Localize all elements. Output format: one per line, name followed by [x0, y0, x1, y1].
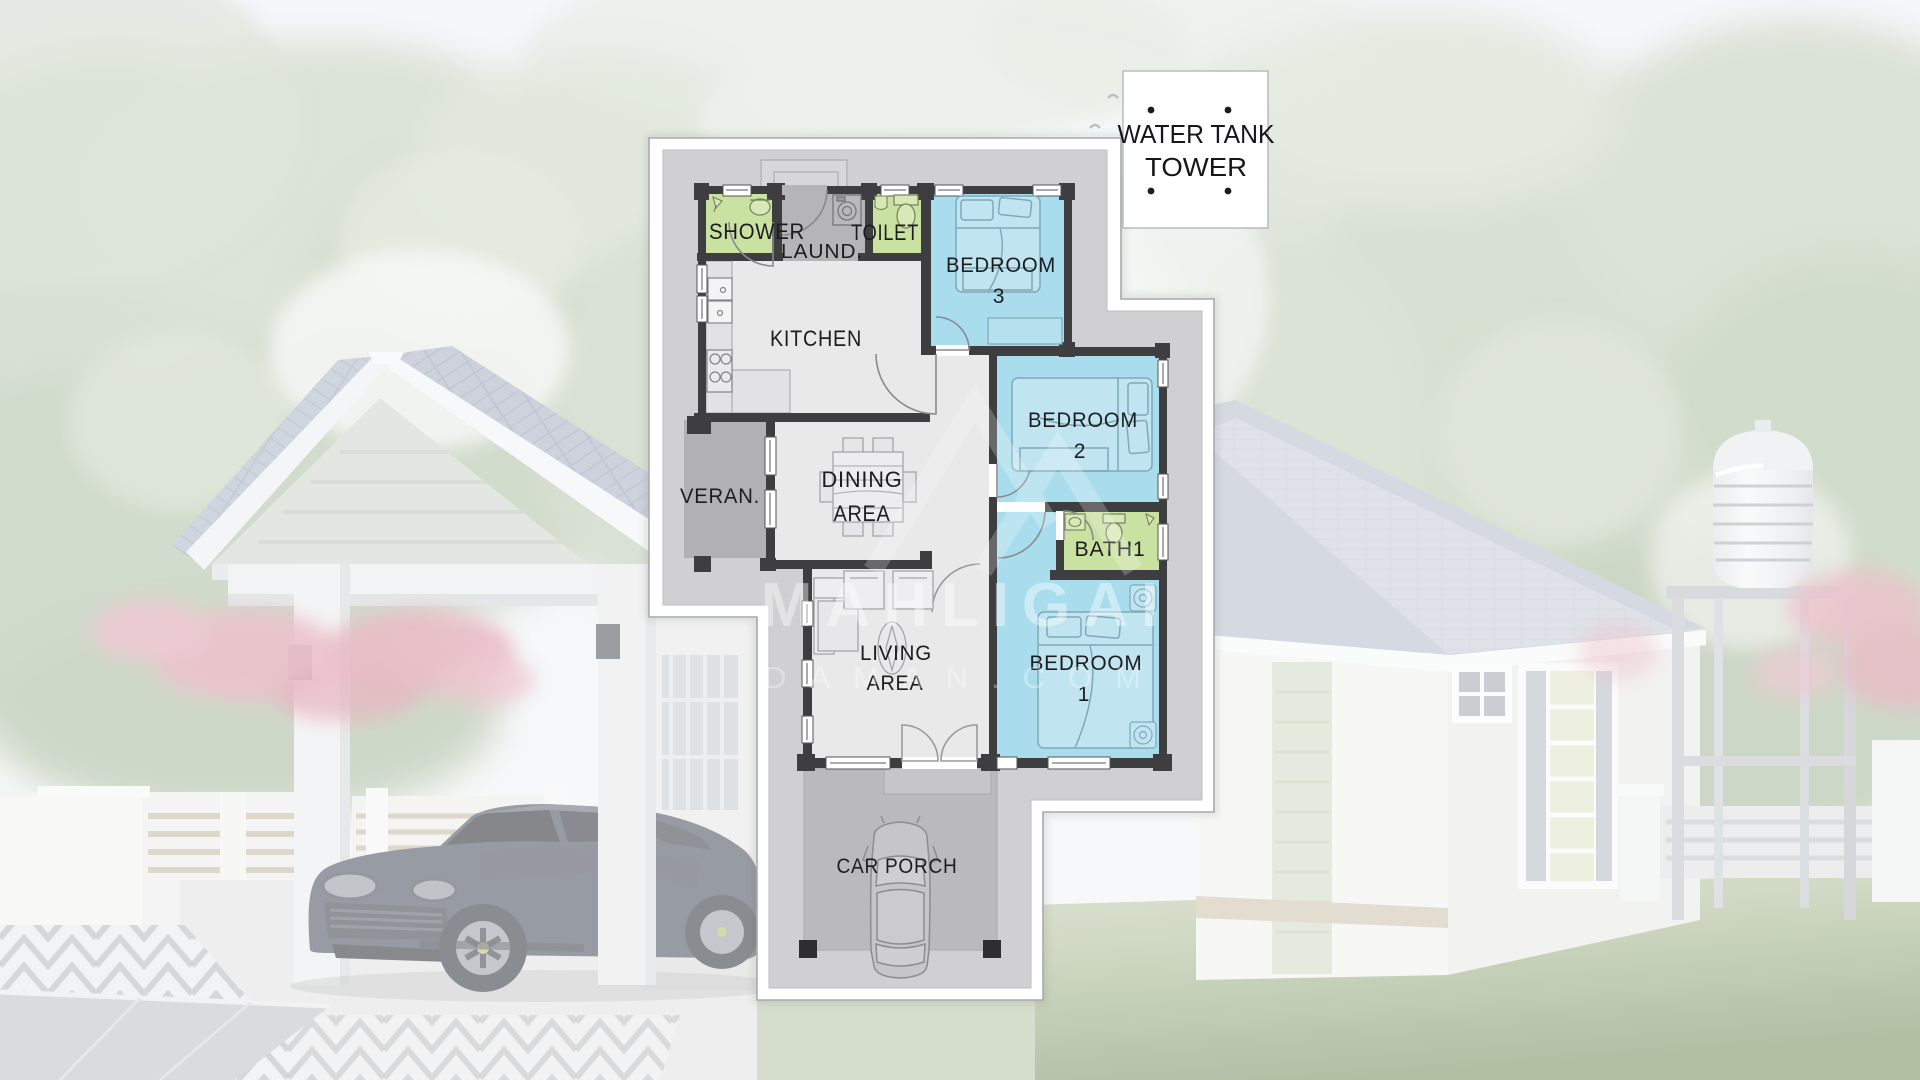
svg-text:AREA: AREA — [834, 501, 891, 526]
svg-text:BEDROOM: BEDROOM — [946, 254, 1056, 277]
svg-text:DINING: DINING — [822, 467, 903, 492]
svg-text:WATER TANK: WATER TANK — [1118, 119, 1276, 149]
svg-text:MAHLIGAI: MAHLIGAI — [761, 571, 1172, 640]
svg-text:CAR PORCH: CAR PORCH — [837, 855, 958, 878]
svg-text:3: 3 — [993, 285, 1005, 308]
svg-text:VERAN.: VERAN. — [680, 485, 760, 508]
svg-text:KITCHEN: KITCHEN — [770, 326, 862, 351]
svg-text:BEDROOM: BEDROOM — [1028, 409, 1138, 432]
svg-text:TOWER: TOWER — [1145, 152, 1247, 182]
svg-text:DAMAN.COM: DAMAN.COM — [764, 660, 1164, 695]
svg-text:TOILET: TOILET — [851, 220, 919, 245]
